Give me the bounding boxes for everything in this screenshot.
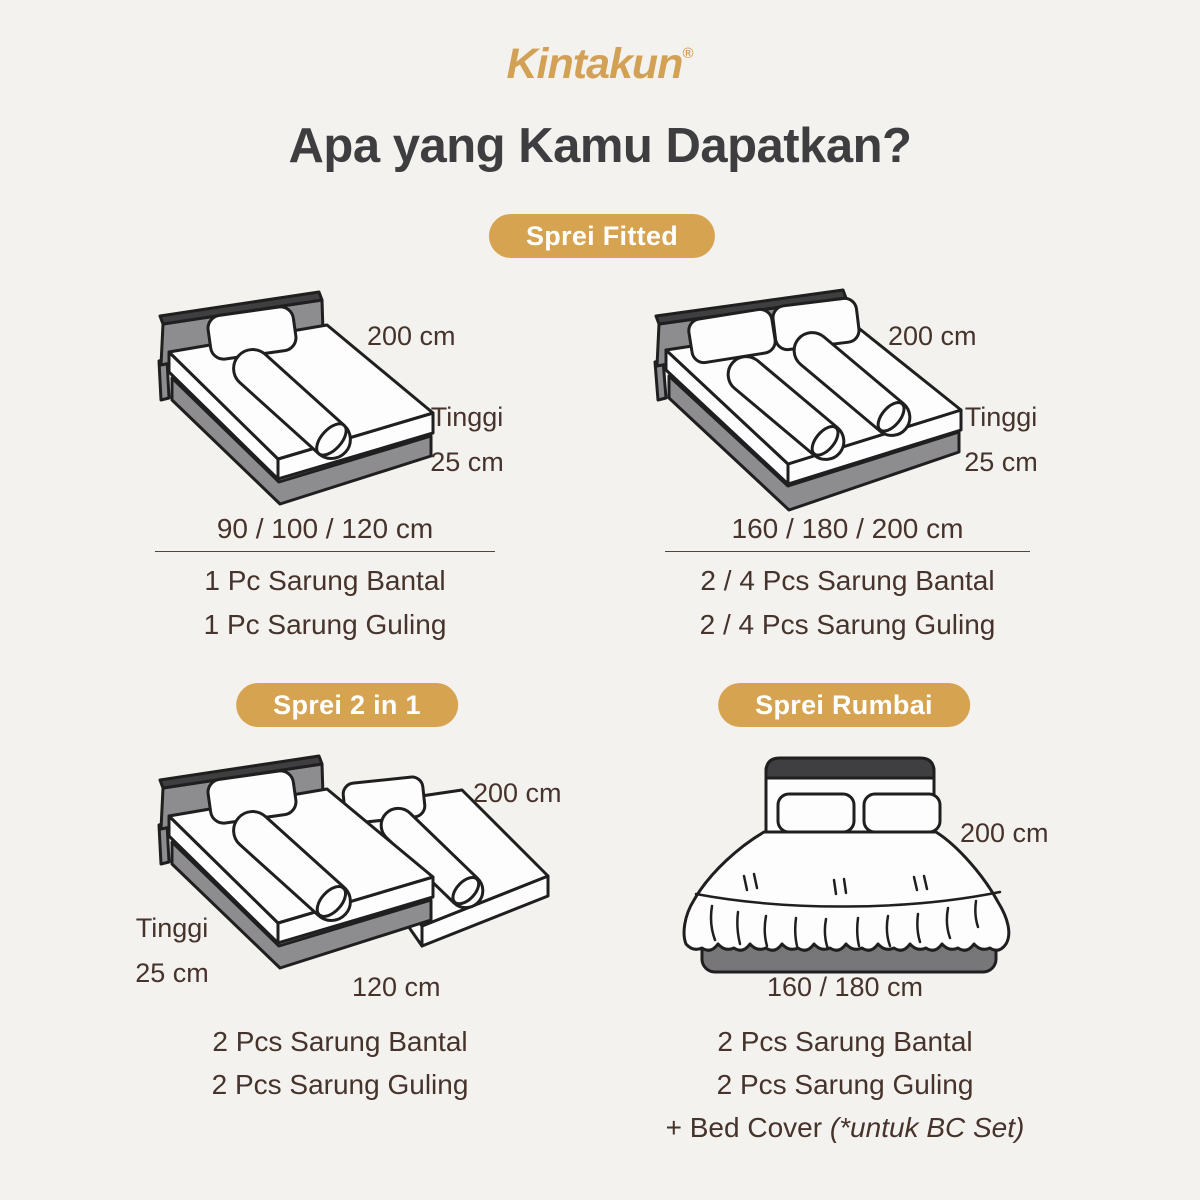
badge-sprei-fitted: Sprei Fitted [489, 214, 715, 258]
page-title: Apa yang Kamu Dapatkan? [0, 118, 1200, 174]
bed-cover-note-prefix: + Bed Cover [666, 1112, 830, 1143]
height-word: Tinggi [958, 395, 1044, 440]
divider-line [155, 551, 495, 552]
height-value: 25 cm [424, 440, 510, 485]
bed1-height-label: Tinggi 25 cm [424, 395, 510, 484]
rumbai-bed-illustration [666, 748, 1016, 988]
included-item: 2 Pcs Sarung Bantal [165, 1026, 515, 1058]
badge-sprei-2in1: Sprei 2 in 1 [236, 683, 458, 727]
height-word: Tinggi [128, 906, 216, 951]
included-item: 2 Pcs Sarung Bantal [655, 1026, 1035, 1058]
included-item: 2 / 4 Pcs Sarung Bantal [660, 565, 1035, 597]
brand-logo-text: Kintakun [506, 40, 682, 88]
brand-logo: Kintakun® [0, 40, 1200, 89]
included-item: 2 / 4 Pcs Sarung Guling [660, 609, 1035, 641]
bed4-length-label: 200 cm [960, 817, 1049, 849]
included-item: 2 Pcs Sarung Guling [165, 1069, 515, 1101]
bed2-length-label: 200 cm [888, 320, 977, 352]
height-value: 25 cm [958, 440, 1044, 485]
bed3-length-label: 200 cm [473, 777, 562, 809]
bed4-width-label: 160 / 180 cm [700, 971, 990, 1003]
bed-cover-note-condition: (*untuk BC Set) [830, 1112, 1025, 1143]
bed1-sizes: 90 / 100 / 120 cm [155, 513, 495, 545]
infographic-canvas: Kintakun® Apa yang Kamu Dapatkan? Sprei … [0, 0, 1200, 1200]
bed3-width-label: 120 cm [352, 971, 441, 1003]
height-word: Tinggi [424, 395, 510, 440]
bed3-height-label: Tinggi 25 cm [128, 906, 216, 995]
registered-trademark-icon: ® [682, 45, 693, 62]
included-item: 2 Pcs Sarung Guling [655, 1069, 1035, 1101]
bed2-height-label: Tinggi 25 cm [958, 395, 1044, 484]
included-item: 1 Pc Sarung Guling [155, 609, 495, 641]
divider-line [665, 551, 1030, 552]
height-value: 25 cm [128, 951, 216, 996]
single-bed-illustration [138, 284, 438, 514]
badge-sprei-rumbai: Sprei Rumbai [718, 683, 970, 727]
bed-cover-note: + Bed Cover (*untuk BC Set) [655, 1112, 1035, 1144]
bed2-sizes: 160 / 180 / 200 cm [660, 513, 1035, 545]
included-item: 1 Pc Sarung Bantal [155, 565, 495, 597]
double-bed-illustration [636, 284, 970, 514]
bed1-length-label: 200 cm [367, 320, 456, 352]
